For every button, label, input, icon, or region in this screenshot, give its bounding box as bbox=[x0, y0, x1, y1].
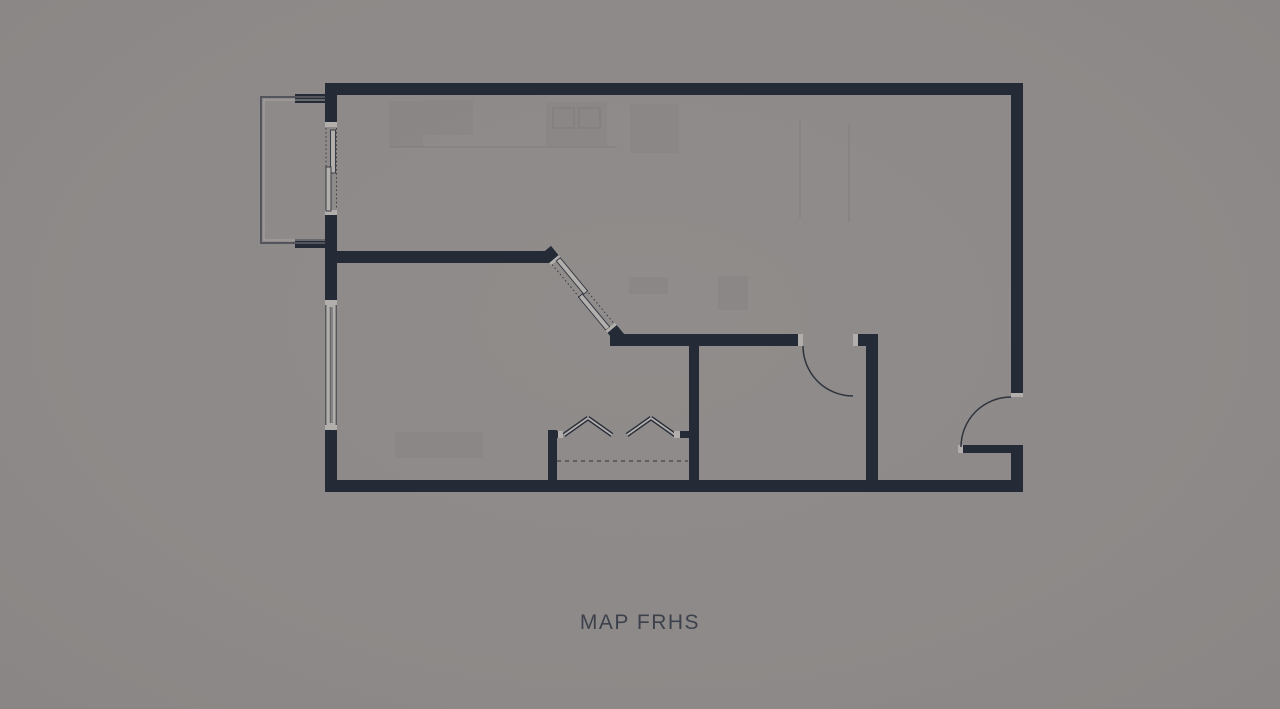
entry-door-swing-arc bbox=[961, 397, 1011, 447]
wall-b bbox=[610, 334, 798, 346]
balcony-railing bbox=[261, 97, 325, 243]
left-wall-window bbox=[325, 305, 337, 425]
wall-top bbox=[325, 83, 1023, 95]
sliding-panel bbox=[556, 258, 587, 294]
balcony-railing-inner bbox=[264, 100, 325, 240]
balcony bbox=[261, 94, 325, 248]
interior-door-swing-arc bbox=[803, 346, 853, 396]
closet-bifold-doors bbox=[564, 418, 675, 435]
closet-stub-right bbox=[680, 431, 690, 438]
wall-right-upper bbox=[1011, 83, 1023, 393]
jamb-cap bbox=[674, 431, 680, 438]
page-background: MAP FRHS bbox=[0, 0, 1280, 709]
wall-bottom bbox=[325, 480, 1023, 492]
entry-stub-wall bbox=[963, 445, 1011, 453]
jamb-cap bbox=[853, 334, 858, 346]
balcony-stub-top bbox=[295, 94, 325, 103]
jamb-cap bbox=[1011, 393, 1023, 397]
plan-title: MAP FRHS bbox=[0, 611, 1280, 635]
sliding-panel bbox=[326, 167, 331, 211]
jamb-cap bbox=[798, 334, 803, 346]
balcony-sliding-door bbox=[326, 128, 337, 211]
wall-left-seg3 bbox=[325, 430, 337, 492]
wall-right-lower bbox=[1011, 445, 1023, 492]
jamb-cap bbox=[325, 425, 337, 430]
wall-left-seg2 bbox=[325, 215, 337, 300]
closet-wall-left bbox=[548, 430, 557, 492]
diagonal-sliding-door bbox=[542, 246, 625, 342]
wall-c bbox=[689, 340, 699, 492]
jamb-cap bbox=[325, 300, 337, 305]
closet-stub-left bbox=[548, 431, 558, 438]
wall-d bbox=[866, 334, 878, 492]
jamb-cap bbox=[558, 431, 563, 438]
ghost-furniture bbox=[389, 100, 849, 458]
wall-left-seg1 bbox=[325, 83, 337, 122]
wall-a bbox=[337, 251, 549, 263]
floor-plan bbox=[0, 0, 1280, 709]
jamb-cap bbox=[325, 122, 337, 127]
